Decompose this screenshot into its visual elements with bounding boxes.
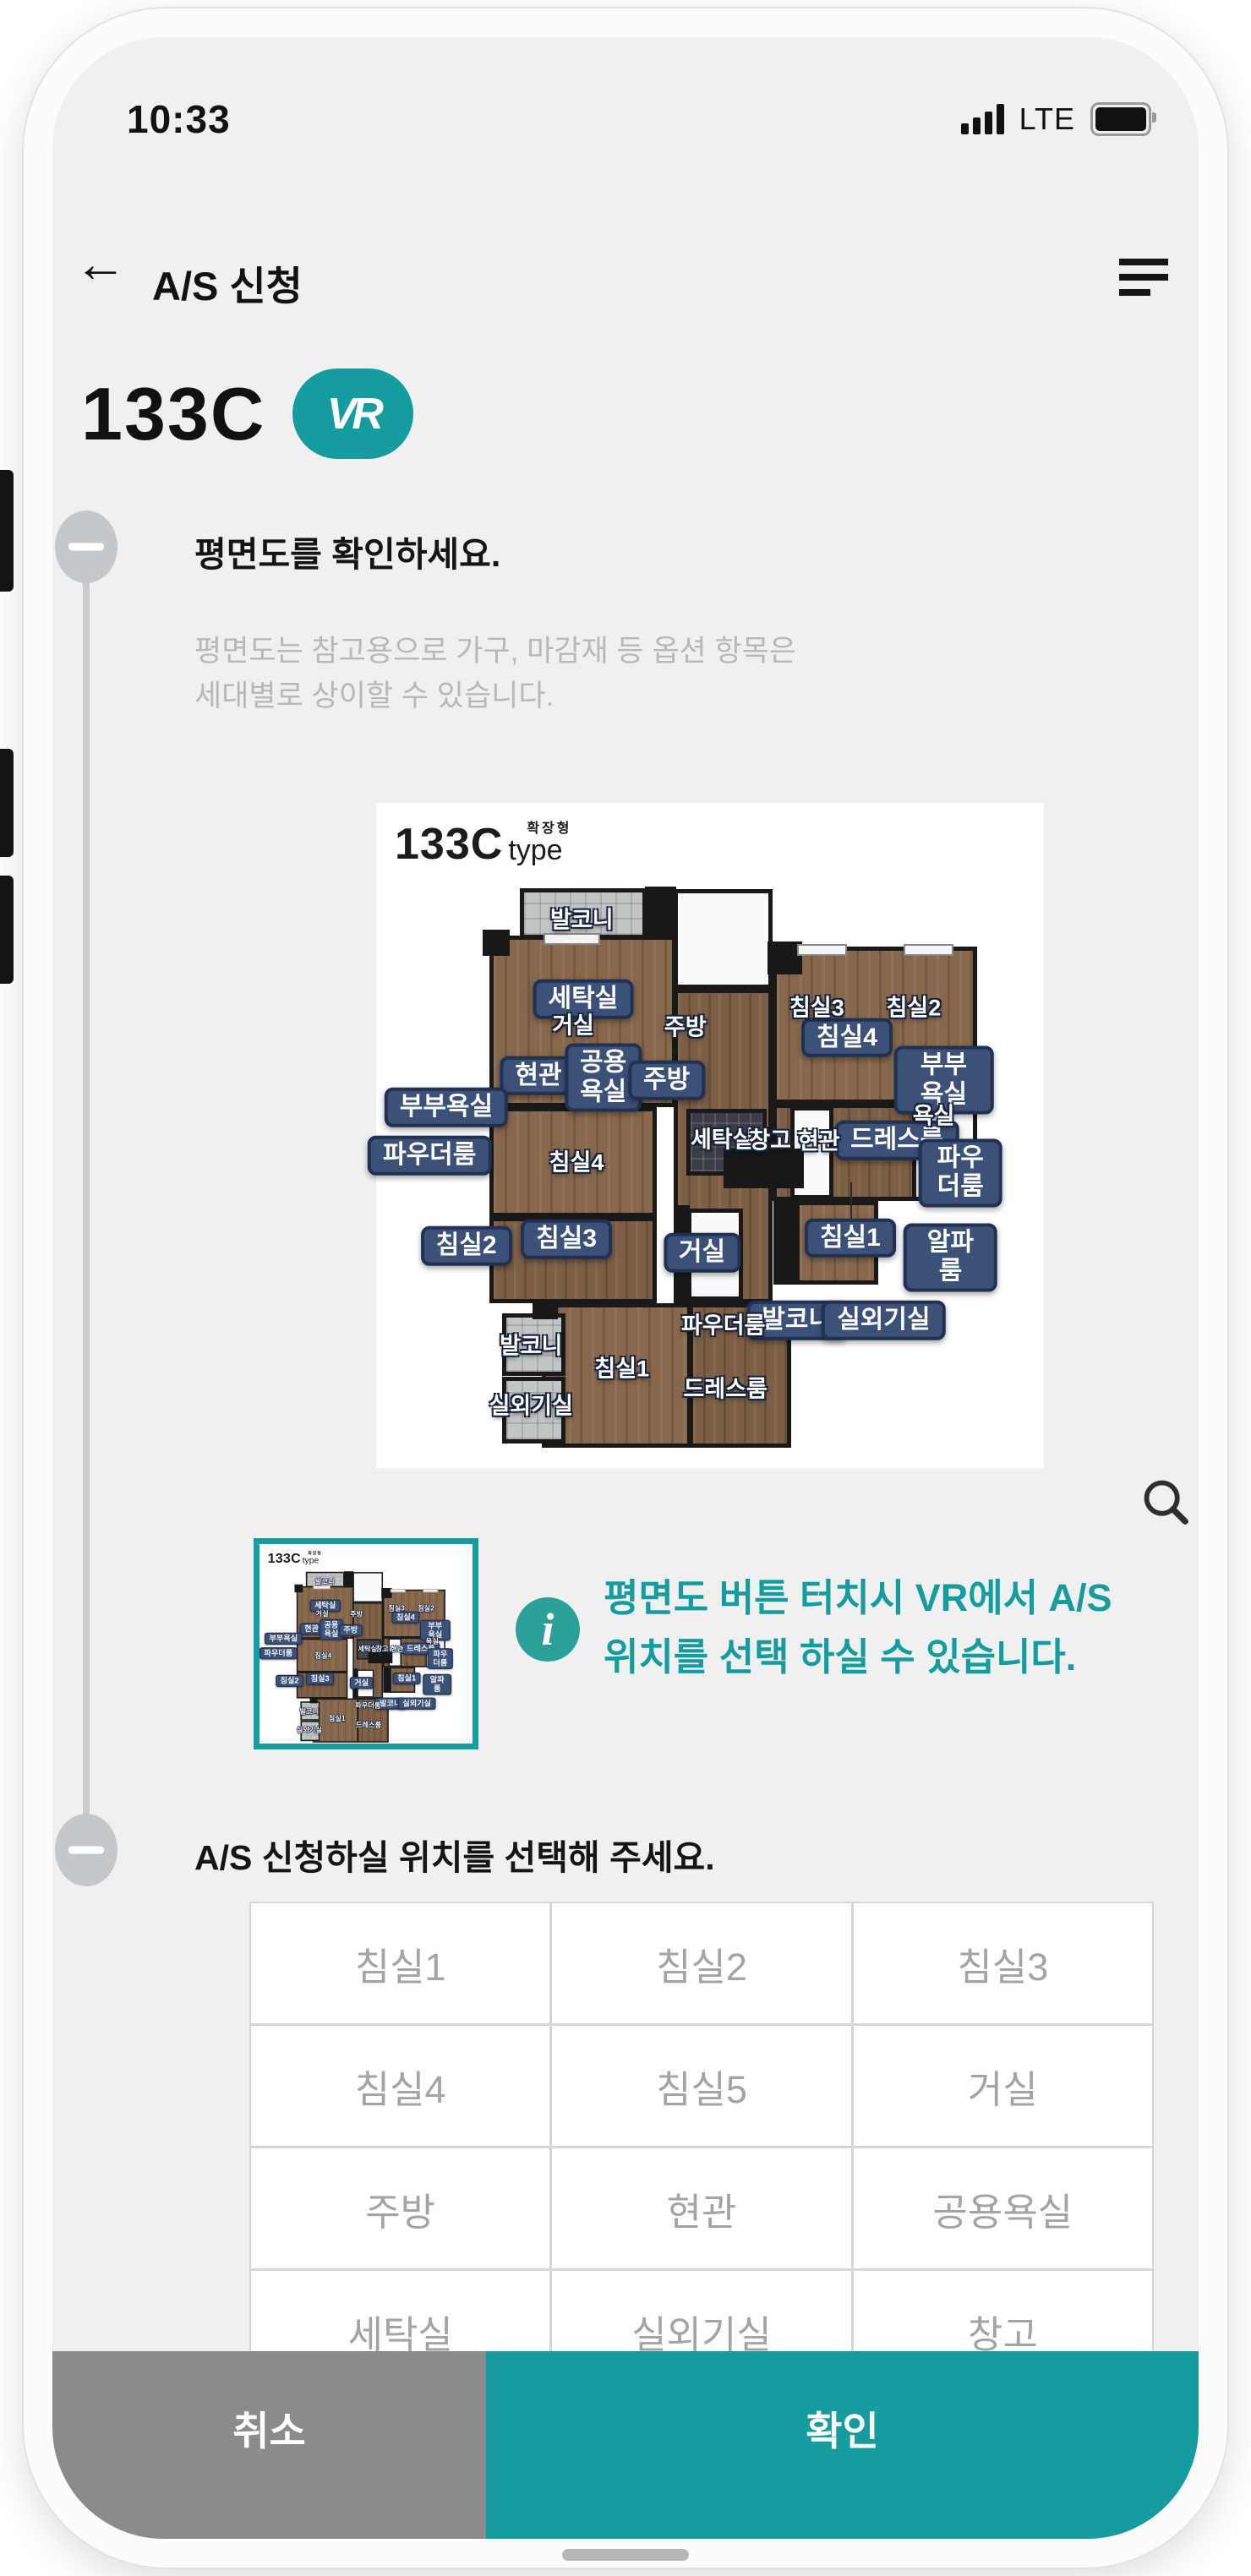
floorplan-room-label: 현관	[391, 1644, 403, 1654]
mid-corridor	[352, 1602, 383, 1698]
living-area	[297, 1586, 353, 1639]
floorplan-room-label: 침실3	[789, 990, 844, 1023]
floorplan-room-label: 침실4	[391, 1612, 419, 1624]
floorplan-room-label: 드레스룸	[402, 1643, 440, 1655]
floorplan-room-label: 침실1	[329, 1713, 346, 1723]
floorplan-room-label: 침실4	[314, 1650, 331, 1660]
location-grid: 침실1침실2침실3침실4침실5거실주방현관공용욕실세탁실실외기실창고	[249, 1902, 1154, 2393]
bathroom-mid	[357, 1669, 374, 1697]
floorplan-room-label: 파우더룸	[355, 1700, 380, 1710]
home-indicator[interactable]	[562, 2549, 689, 2561]
floorplan-room-label: 파우더룸	[681, 1307, 765, 1340]
vr-button[interactable]: VR	[292, 368, 413, 459]
floorplan-room-label: 알파룸	[904, 1223, 997, 1291]
right-bedrooms-area	[383, 1590, 445, 1638]
floorplan-room-label: 발코니	[375, 1698, 406, 1710]
window	[313, 1585, 330, 1589]
right-middle-area	[383, 1637, 445, 1667]
side-button	[0, 876, 14, 984]
wall-chunk	[309, 1697, 317, 1703]
laundry-storage-area	[357, 1639, 381, 1659]
wall-chunk	[295, 1585, 303, 1593]
info-icon: i	[516, 1597, 580, 1662]
floorplan-panel[interactable]: 133C 확장형 type	[376, 803, 1044, 1468]
floorplan-room-label: 주방	[664, 1008, 707, 1041]
vr-label: VR	[327, 389, 380, 439]
info-icon-glyph: i	[541, 1607, 554, 1652]
floorplan-room-label: 발코니	[550, 902, 614, 935]
unit-code: 133C	[81, 371, 265, 457]
floorplan-logo: 133C 확장형 type	[395, 816, 571, 864]
floorplan-room-label: 파우더룸	[368, 1136, 491, 1176]
wall-chunk	[383, 1667, 390, 1693]
wall-chunk	[645, 887, 677, 938]
floorplan-room-label: 침실4	[549, 1144, 604, 1177]
timeline-line	[83, 578, 90, 1827]
floorplan-room-label: 침실2	[421, 1226, 512, 1266]
floorplan-room-label: 거실	[664, 1233, 740, 1273]
right-lower-area	[390, 1667, 415, 1693]
floorplan-room-label: 침실1	[594, 1351, 649, 1384]
balcony-bottom	[300, 1701, 320, 1720]
status-time: 10:33	[127, 96, 231, 142]
section1-description: 평면도는 참고용으로 가구, 마감재 등 옵션 항목은 세대별로 상이할 수 있…	[194, 629, 1116, 718]
location-cell[interactable]: 침실2	[552, 1903, 850, 2023]
bedroom1-area	[313, 1699, 358, 1743]
menu-icon[interactable]	[1119, 259, 1170, 304]
window	[544, 933, 600, 945]
floorplan-room-label: 거실	[316, 1608, 329, 1618]
location-cell[interactable]: 침실1	[251, 1903, 549, 2023]
floorplan-room-label: 욕실	[426, 1635, 439, 1645]
floorplan-room-label: 주방	[628, 1061, 705, 1100]
magnifier-icon[interactable]	[1141, 1477, 1190, 1526]
battery-icon	[1090, 102, 1151, 136]
volume-up-button	[0, 470, 14, 592]
back-button[interactable]: ←	[74, 238, 127, 291]
floorplan-room-label: 파우더룸	[259, 1647, 298, 1659]
info-line2: 위치를 선택 하실 수 있습니다.	[604, 1635, 1076, 1678]
floorplan-room-label: 세탁실	[358, 1643, 377, 1653]
floorplan-room-label: 발코니	[500, 1327, 563, 1360]
floorplan-room-label: 거실	[350, 1677, 374, 1689]
floorplan-room-label: 침실1	[805, 1218, 896, 1258]
info-note: 평면도 버튼 터치시 VR에서 A/S 위치를 선택 하실 수 있습니다.	[604, 1569, 1170, 1687]
floorplan-logo-variant: 확장형	[308, 1550, 321, 1556]
app-screen: 10:33 LTE ← A/S 신청 133C VR	[52, 37, 1199, 2539]
footer-bar: 취소 확인	[52, 2351, 1199, 2539]
wall-chunk	[381, 1588, 392, 1598]
wall-chunk	[533, 1299, 558, 1319]
floorplan-room-label: 드레스룸	[683, 1370, 767, 1403]
bedroom4-area	[297, 1639, 347, 1672]
balcony-area	[306, 1572, 345, 1587]
location-cell[interactable]: 현관	[552, 2148, 850, 2268]
floorplan-room-label: 침실4	[801, 1018, 893, 1058]
bathroom-right	[425, 1637, 445, 1667]
floorplan-room-label: 현관	[798, 1123, 840, 1156]
bedroom23-area	[297, 1672, 347, 1698]
location-cell[interactable]: 침실4	[251, 2026, 549, 2146]
floorplan-room-label: 침실2	[418, 1602, 434, 1613]
wall-chunk	[483, 930, 510, 956]
floorplan-logo-type: type	[303, 1556, 320, 1564]
entry-corridor	[388, 1638, 402, 1667]
page: 10:33 LTE ← A/S 신청 133C VR	[0, 0, 1251, 2576]
kitchen-area	[674, 889, 773, 989]
phone-frame: 10:33 LTE ← A/S 신청 133C VR	[24, 8, 1227, 2568]
location-cell[interactable]: 주방	[251, 2148, 549, 2268]
floorplan-room-label: 침실1	[393, 1673, 421, 1684]
floorplan-room-label: 실외기실	[822, 1301, 945, 1340]
window	[797, 944, 847, 956]
floorplan-thumbnail[interactable]: 133C 확장형 type	[254, 1538, 478, 1749]
confirm-button[interactable]: 확인	[486, 2351, 1199, 2539]
floorplan-logo-type: type	[508, 837, 562, 864]
floorplan-room-label: 창고	[749, 1122, 791, 1155]
floorplan-room-label: 파우더룸	[919, 1138, 1002, 1207]
location-cell[interactable]: 거실	[854, 2026, 1152, 2146]
floorplan-room-label: 거실	[552, 1007, 594, 1040]
location-cell[interactable]: 공용욕실	[854, 2148, 1152, 2268]
floorplan-room-label: 공용 욕실	[320, 1619, 343, 1640]
location-cell[interactable]: 침실5	[552, 2026, 850, 2146]
collapse-section2-button[interactable]	[55, 1814, 117, 1886]
floorplan-room-label: 발코니	[300, 1706, 320, 1716]
floorplan-room-label: 실외기실	[489, 1387, 573, 1420]
floorplan-room-label: 세탁실	[691, 1121, 754, 1154]
window	[423, 1589, 438, 1592]
volume-down-button	[0, 749, 14, 857]
floorplan-room-label: 드레스룸	[356, 1719, 381, 1729]
floorplan-room-label: 실외기실	[297, 1724, 322, 1734]
minus-icon	[68, 543, 104, 551]
outdoor-unit-room	[300, 1721, 320, 1741]
floorplan-logo-code: 133C	[395, 825, 503, 865]
floorplan-room-label: 주방	[350, 1608, 363, 1618]
wall-chunk	[773, 1201, 796, 1285]
page-title: A/S 신청	[152, 254, 303, 312]
floorplan-room-label: 욕실	[913, 1098, 955, 1131]
floorplan-room-label: 침실3	[388, 1602, 405, 1613]
floorplan-logo: 133C 확장형 type	[268, 1550, 322, 1564]
floorplan-room-label: 현관	[300, 1623, 324, 1635]
collapse-section1-button[interactable]	[55, 510, 117, 583]
window	[391, 1589, 406, 1592]
cancel-button[interactable]: 취소	[52, 2351, 486, 2539]
floorplan-room-label: 파우더룸	[428, 1648, 453, 1669]
section1-title: 평면도를 확인하세요.	[194, 526, 500, 576]
floorplan-room-label: 부부욕실	[420, 1620, 451, 1641]
kitchen-area	[352, 1572, 383, 1602]
info-line1: 평면도 버튼 터치시 VR에서 A/S	[604, 1576, 1112, 1619]
location-cell[interactable]: 침실3	[854, 1903, 1152, 2023]
floorplan-room-label: 부부욕실	[385, 1088, 508, 1127]
floorplan-room-label: 침실3	[521, 1220, 612, 1259]
label-leader-line	[407, 1662, 407, 1675]
wall-chunk	[368, 1651, 392, 1663]
floorplan-room-label: 실외기실	[398, 1698, 436, 1710]
desc-line1: 평면도는 참고용으로 가구, 마감재 등 옵션 항목은	[194, 635, 796, 668]
floorplan-room-label: 세탁실	[310, 1600, 341, 1612]
floorplan-room-label: 침실3	[306, 1673, 334, 1684]
floorplan-room-label: 주방	[339, 1624, 363, 1636]
floorplan-room-label: 알파룸	[423, 1674, 451, 1695]
unit-row: 133C VR	[81, 368, 413, 459]
wall-chunk	[344, 1571, 354, 1587]
floorplan-room-label: 침실2	[276, 1675, 303, 1687]
signal-icon	[961, 104, 1004, 134]
section2-title: A/S 신청하실 위치를 선택해 주세요.	[194, 1829, 715, 1880]
wall-chunk	[352, 1668, 358, 1698]
window	[904, 944, 953, 956]
floorplan-thumbnail-content: 133C 확장형 type	[262, 1546, 466, 1749]
floorplan-logo-code: 133C	[268, 1553, 301, 1564]
floorplan-room-label: 부부욕실	[265, 1633, 303, 1645]
floorplan-room-label: 발코니	[315, 1576, 335, 1586]
desc-line2: 세대별로 상이할 수 있습니다.	[194, 679, 554, 712]
status-icons: LTE	[961, 101, 1151, 137]
floorplan-room-label: 침실2	[887, 990, 942, 1023]
network-label: LTE	[1019, 101, 1075, 137]
minus-icon	[68, 1847, 104, 1854]
dressroom-area	[358, 1699, 389, 1743]
floorplan-room-label: 창고	[376, 1643, 389, 1653]
